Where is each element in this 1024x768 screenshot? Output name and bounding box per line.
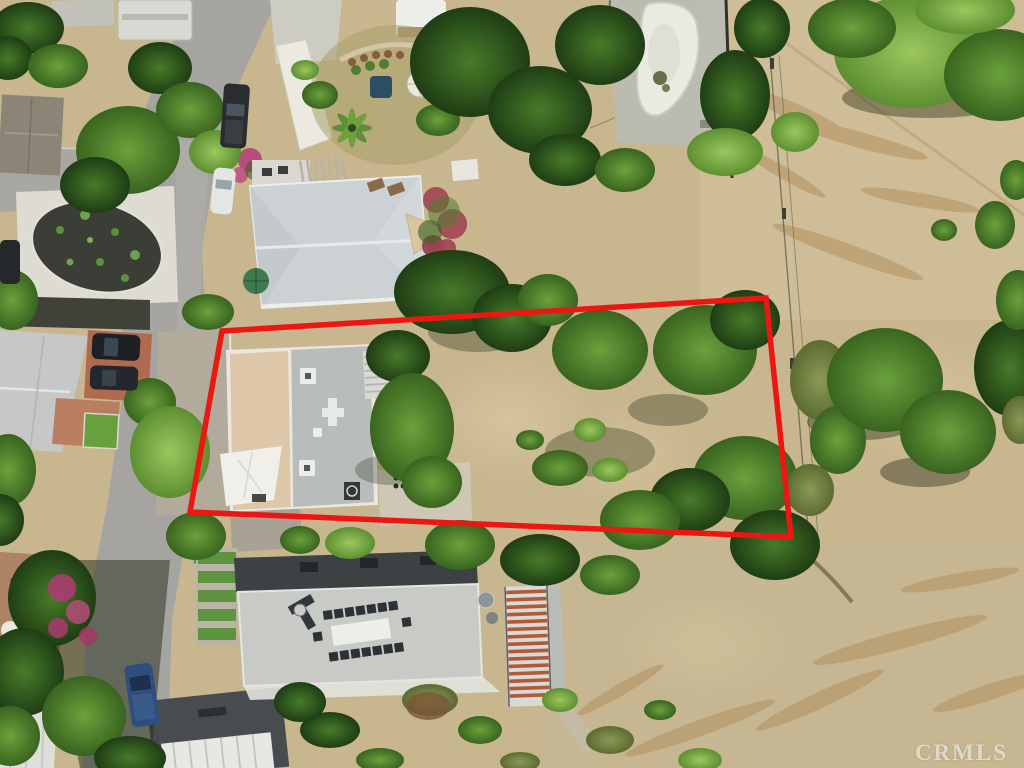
tree-canopy — [518, 274, 578, 326]
green-umbrella — [243, 268, 269, 294]
tree-canopy — [687, 128, 763, 176]
tree-canopy — [182, 294, 234, 330]
watermark: CRMLS — [915, 740, 1008, 766]
tree-canopy — [786, 464, 834, 516]
shrub — [644, 700, 676, 720]
round-table — [478, 592, 494, 608]
tree-canopy — [552, 310, 648, 390]
shrub — [291, 60, 319, 80]
tree-canopy — [700, 50, 770, 140]
pool-debris — [653, 71, 667, 85]
tree-canopy — [500, 534, 580, 586]
tree-canopy — [166, 512, 226, 560]
house-top-left — [0, 94, 64, 175]
tree-canopy — [425, 520, 495, 570]
pool-debris — [662, 84, 670, 92]
fence-post — [770, 58, 774, 69]
shrub — [302, 81, 338, 109]
tree-canopy — [529, 134, 601, 186]
shrub — [532, 450, 588, 486]
shed — [451, 159, 479, 181]
tree-canopy — [580, 555, 640, 595]
tree-canopy — [808, 0, 896, 58]
dark-pickup-truck — [220, 83, 250, 149]
dirt-highlight — [620, 593, 790, 697]
shrub — [516, 430, 544, 450]
shrub — [458, 716, 502, 744]
aerial-scene — [0, 0, 1024, 768]
tree-canopy — [402, 456, 462, 508]
tree-canopy — [60, 157, 130, 213]
tree-canopy — [555, 5, 645, 85]
shrub — [274, 682, 326, 722]
deck-chair — [262, 168, 272, 176]
tree-canopy — [734, 0, 790, 58]
tree-canopy — [600, 490, 680, 550]
tree-canopy — [28, 44, 88, 88]
tree-canopy — [900, 390, 996, 474]
shrub — [771, 112, 819, 152]
tree-canopy — [595, 148, 655, 192]
tree-canopy — [975, 201, 1015, 249]
fence-post — [782, 208, 786, 219]
tree-canopy — [730, 510, 820, 580]
dry-bush — [406, 692, 450, 720]
shrub — [280, 526, 320, 554]
shrub — [325, 527, 375, 559]
shade-canopy — [220, 446, 282, 506]
aerial-photo: CRMLS — [0, 0, 1024, 768]
shrub — [931, 219, 957, 241]
shrub — [592, 458, 628, 482]
shrub — [586, 726, 634, 754]
round-table — [486, 612, 498, 624]
shrub — [542, 688, 578, 712]
tree-canopy — [156, 82, 224, 138]
ac-unit — [344, 482, 360, 500]
hot-tub — [370, 76, 392, 98]
shrub — [574, 418, 606, 442]
palm-tree — [332, 108, 372, 148]
lawn-square — [83, 413, 119, 449]
rv-trailer — [118, 0, 192, 40]
parked-car — [0, 240, 20, 284]
stair-slats — [504, 585, 552, 706]
deck-chair — [278, 166, 288, 174]
turf-strips — [196, 548, 238, 646]
